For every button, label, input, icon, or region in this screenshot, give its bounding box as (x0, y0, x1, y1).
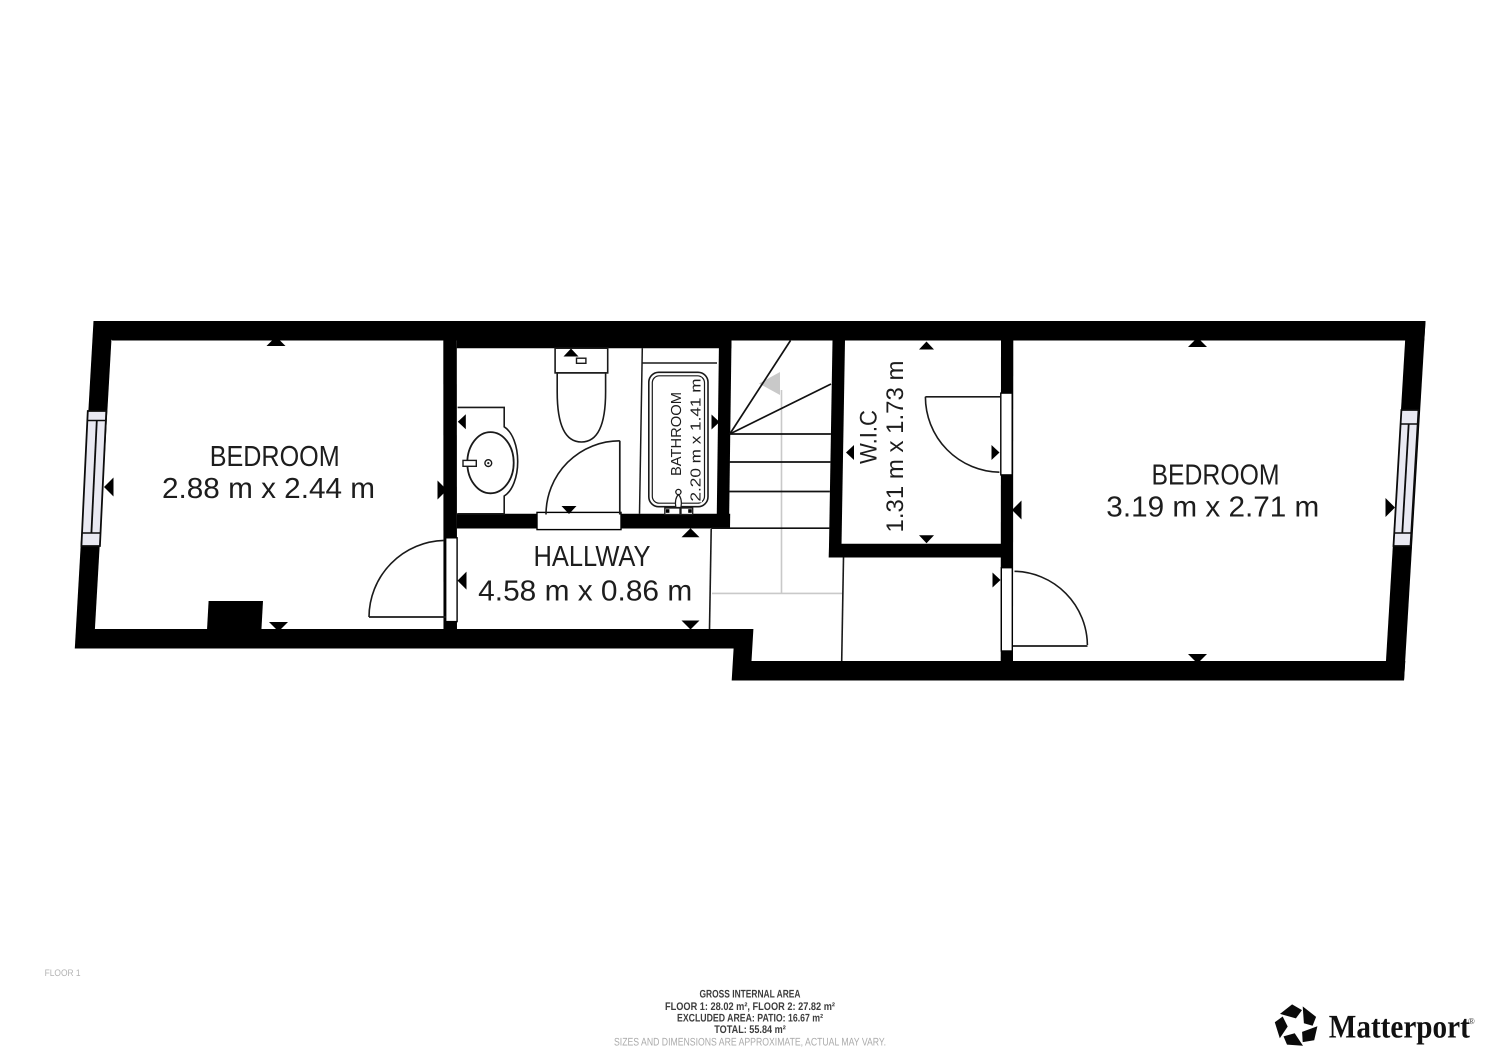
svg-text:W.I.C: W.I.C (856, 410, 883, 464)
svg-text:TOTAL: 55.84 m²: TOTAL: 55.84 m² (714, 1024, 786, 1036)
svg-text:GROSS INTERNAL AREA: GROSS INTERNAL AREA (700, 989, 801, 1001)
svg-text:Matterport: Matterport (1329, 1010, 1470, 1046)
svg-text:1.31 m x 1.73 m: 1.31 m x 1.73 m (882, 361, 909, 533)
svg-text:®: ® (1468, 1016, 1475, 1026)
svg-text:4.58 m x 0.86 m: 4.58 m x 0.86 m (478, 576, 692, 608)
svg-text:EXCLUDED AREA: PATIO: 16.67 m²: EXCLUDED AREA: PATIO: 16.67 m² (677, 1013, 823, 1025)
svg-text:2.88 m x 2.44 m: 2.88 m x 2.44 m (162, 473, 375, 505)
svg-text:BEDROOM: BEDROOM (1152, 459, 1280, 491)
svg-text:2.20 m x 1.41 m: 2.20 m x 1.41 m (689, 379, 705, 502)
svg-text:FLOOR 1: 28.02 m², FLOOR 2: 27: FLOOR 1: 28.02 m², FLOOR 2: 27.82 m² (665, 1001, 835, 1013)
svg-text:HALLWAY: HALLWAY (534, 541, 651, 573)
svg-text:SIZES AND DIMENSIONS ARE APPRO: SIZES AND DIMENSIONS ARE APPROXIMATE, AC… (614, 1037, 886, 1049)
svg-text:3.19 m x 2.71 m: 3.19 m x 2.71 m (1106, 491, 1319, 523)
svg-text:BATHROOM: BATHROOM (669, 392, 685, 476)
svg-text:BEDROOM: BEDROOM (210, 441, 340, 473)
svg-text:FLOOR 1: FLOOR 1 (45, 968, 81, 979)
